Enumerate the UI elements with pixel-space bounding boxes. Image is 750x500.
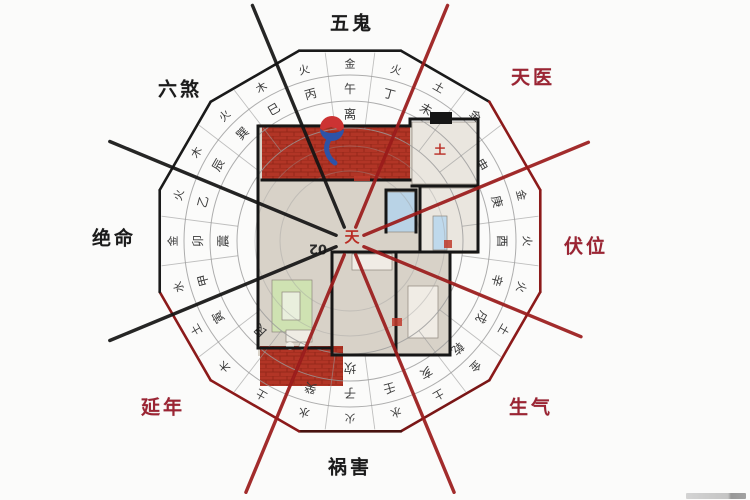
element-char: 水	[297, 404, 311, 419]
mountain-char: 子	[344, 386, 356, 400]
sector-label-yannian: 延年	[141, 393, 185, 420]
element-char: 木	[188, 144, 205, 160]
mountain-char: 壬	[382, 380, 397, 397]
polygon-edge	[160, 292, 211, 380]
mountain-char: 甲	[195, 273, 212, 288]
ring-divider	[462, 256, 538, 266]
sector-label-jueming: 绝命	[92, 224, 136, 251]
mountain-char: 戌	[473, 308, 491, 325]
watermark-smudge	[686, 493, 746, 499]
element-char: 火	[513, 280, 528, 294]
ring-divider	[365, 53, 375, 129]
sector-label-wugui: 五鬼	[330, 9, 374, 36]
floor-plan	[258, 122, 478, 386]
mountain-char: 丁	[382, 86, 397, 103]
polygon-edge	[211, 380, 299, 431]
element-char: 金	[345, 57, 356, 71]
element-char: 土	[495, 321, 512, 337]
sector-label-shengqi: 生气	[509, 393, 553, 420]
sector-label-fuwei: 伏位	[564, 232, 608, 259]
polygon-edge	[401, 380, 489, 431]
mountain-char: 巽	[233, 124, 251, 142]
mountain-char: 卯	[191, 235, 205, 247]
plan-red-accent	[392, 318, 402, 326]
element-char: 金	[467, 358, 485, 376]
plan-label-soil_mark: 土	[434, 142, 446, 157]
element-char: 水	[171, 280, 186, 294]
element-char: 火	[521, 236, 534, 247]
mountain-char: 丙	[303, 86, 318, 103]
element-char: 火	[171, 188, 186, 202]
trigram-char: 离	[344, 107, 357, 122]
element-char: 土	[188, 321, 205, 337]
polygon-edge	[489, 292, 540, 380]
mountain-char: 巳	[265, 100, 282, 118]
trigram-char: 震	[216, 234, 231, 247]
mountain-char: 辰	[209, 156, 227, 173]
element-char: 火	[297, 62, 311, 77]
element-char: 火	[389, 62, 403, 77]
polygon-edge	[489, 102, 540, 190]
element-char: 木	[216, 358, 233, 375]
element-char: 火	[345, 412, 356, 425]
element-char: 土	[253, 386, 269, 403]
ring-divider	[162, 256, 238, 266]
mountain-char: 酉	[495, 235, 509, 247]
mountain-char: 庚	[489, 194, 507, 209]
mountain-char: 亥	[417, 364, 434, 382]
fengshui-bazhai-diagram: 离震艮坎寅甲卯乙辰巽巳丙午丁未申庚酉辛戌乾亥壬子癸木土水金火木火木火金火土金金火…	[0, 0, 750, 500]
polygon-edge	[160, 102, 211, 190]
element-char: 火	[216, 107, 233, 124]
element-char: 金	[166, 236, 180, 247]
sector-label-liusha: 六煞	[158, 75, 202, 102]
element-char: 水	[389, 404, 403, 419]
chimney-block	[430, 112, 452, 124]
mountain-char: 寅	[208, 308, 227, 326]
mountain-char: 午	[344, 82, 356, 96]
plan-label-center_mark: 天	[344, 228, 360, 246]
plan-red-accent	[444, 240, 452, 248]
sector-label-tianyi: 天医	[511, 63, 555, 90]
polygon-edge	[211, 51, 299, 102]
mountain-char: 辛	[489, 273, 506, 288]
ring-divider	[199, 125, 260, 172]
element-char: 土	[430, 79, 446, 96]
element-char: 土	[430, 386, 446, 403]
mountain-char: 乙	[195, 194, 212, 209]
sector-label-huohai: 祸害	[328, 453, 372, 480]
element-char: 木	[253, 79, 269, 96]
plan-red-accent	[354, 176, 370, 181]
element-char: 金	[513, 188, 529, 202]
trigram-char: 坎	[343, 361, 356, 376]
polygon-edge	[401, 51, 489, 102]
ring-divider	[365, 353, 375, 429]
ring-divider	[162, 216, 238, 226]
